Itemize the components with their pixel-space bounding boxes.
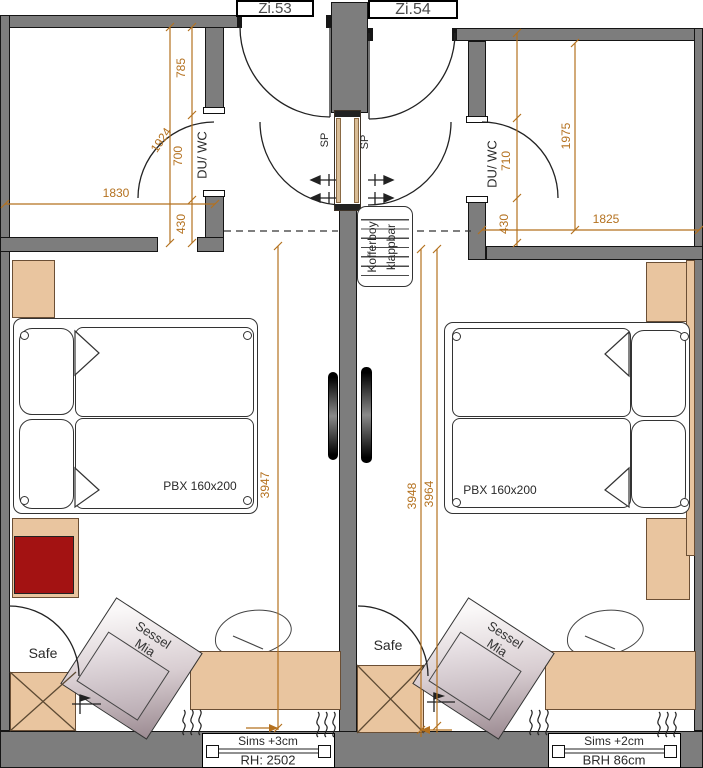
entry-right-jamb-a <box>368 28 373 41</box>
wall-center-block <box>331 2 368 113</box>
bed-label-left: PBX 160x200 <box>163 479 236 493</box>
pillow-right-1 <box>631 330 686 417</box>
dim-room-depth-left: 3947 <box>258 472 272 499</box>
dim-entry-mid-right: 710 <box>499 151 513 171</box>
entry-left-jamb-b <box>326 15 331 28</box>
bed-post <box>680 498 689 507</box>
nightstand-left-top <box>12 260 55 318</box>
luggage-rack-label-1: Kofferboy <box>365 221 379 272</box>
nightstand-right-top <box>646 262 690 322</box>
bed-post <box>680 332 689 341</box>
safe-label-left: Safe <box>29 645 58 661</box>
mirror-label-right: SP <box>359 135 371 150</box>
wall-top-right <box>455 28 703 41</box>
dim-entry-total-right: 1975 <box>559 123 573 150</box>
wall-bath-right-lower <box>468 198 486 260</box>
mirror-niche-cap-top <box>335 111 360 117</box>
window-right-jamb-b <box>664 745 677 758</box>
room-label-right: Zi.54 <box>368 0 458 19</box>
wall-right <box>694 28 703 731</box>
mirror-niche-cap-bottom <box>335 204 360 210</box>
window-left-jamb-a <box>206 745 219 758</box>
wall-bath-left-band2 <box>197 237 224 252</box>
tv-left <box>328 372 338 460</box>
bath-label-right: DU/ WC <box>485 140 500 188</box>
desk-left <box>190 651 341 710</box>
bed-post <box>243 496 252 505</box>
dim-room-depth-b-right: 3964 <box>422 481 436 508</box>
duvet-left-1 <box>75 327 254 417</box>
armchair-left: Sessel Mia <box>60 597 202 739</box>
room-label-right-text: Zi.54 <box>395 1 431 19</box>
bed-label-right: PBX 160x200 <box>463 483 536 497</box>
dim-bath-width-right: 1825 <box>593 212 620 226</box>
wall-left <box>0 15 10 731</box>
bath-left-door-jamb-bottom <box>203 190 225 197</box>
mirror-niche-band-right <box>354 118 359 203</box>
dim-entry-mid-left: 700 <box>171 146 185 166</box>
wardrobe-right <box>357 665 424 733</box>
entry-door-left-arc <box>240 27 330 117</box>
room-label-left-text: Zi.53 <box>258 0 291 17</box>
wall-bath-right-upper <box>468 41 486 123</box>
bath-right-door-jamb-bottom <box>466 196 488 203</box>
dim-entry-bottom-left: 430 <box>174 214 188 234</box>
bed-post <box>452 498 461 507</box>
bath-label-left: DU/ WC <box>195 131 210 179</box>
window-label-right-2: BRH 86cm <box>583 753 646 768</box>
wall-bath-left-upper <box>205 27 224 113</box>
safe-label-right: Safe <box>374 637 403 653</box>
window-label-right-1: Sims +2cm <box>584 734 644 748</box>
dim-bath-width-left: 1830 <box>103 186 130 200</box>
dim-room-depth-a-right: 3948 <box>405 483 419 510</box>
pillow-right-2 <box>631 420 686 508</box>
desk-right <box>545 651 696 710</box>
floor-plan: Sessel Mia Sessel Mia <box>0 0 703 768</box>
mirror-niche-band-left <box>336 118 341 203</box>
duvet-left-2 <box>75 418 254 509</box>
luggage-rack-label-2: klappbar <box>384 224 398 270</box>
tv-right <box>361 367 372 463</box>
duvet-right-1 <box>452 328 631 417</box>
entry-door-right-arc <box>369 33 455 119</box>
dim-entry-top-left: 785 <box>174 58 188 78</box>
dim-entry-bottom-right: 430 <box>497 214 511 234</box>
mirror-label-left: SP <box>319 133 331 148</box>
bed-post <box>20 496 29 505</box>
armchair-right: Sessel Mia <box>412 597 554 739</box>
window-left-jamb-b <box>318 745 331 758</box>
wall-bath-right-band <box>486 246 703 260</box>
nightstand-right-bottom <box>646 518 690 600</box>
window-label-left-2: RH: 2502 <box>241 753 296 768</box>
window-right-jamb-a <box>552 745 565 758</box>
bath-right-door-jamb-top <box>466 116 488 123</box>
bed-post <box>243 331 252 340</box>
bath-left-door-jamb-top <box>203 107 225 114</box>
minibar-left <box>14 536 74 594</box>
bed-post <box>20 331 29 340</box>
safe-door-left-arc <box>9 606 79 676</box>
mirror-niche <box>334 110 361 211</box>
pillow-left-1 <box>19 328 74 415</box>
bed-post <box>452 332 461 341</box>
pillow-left-2 <box>19 419 74 509</box>
window-label-left-1: Sims +3cm <box>238 734 298 748</box>
entry-right-jamb-b <box>452 28 457 41</box>
room-label-left: Zi.53 <box>236 0 314 17</box>
wall-bath-left-band <box>0 237 158 252</box>
hall-door-right-arc <box>368 122 451 205</box>
